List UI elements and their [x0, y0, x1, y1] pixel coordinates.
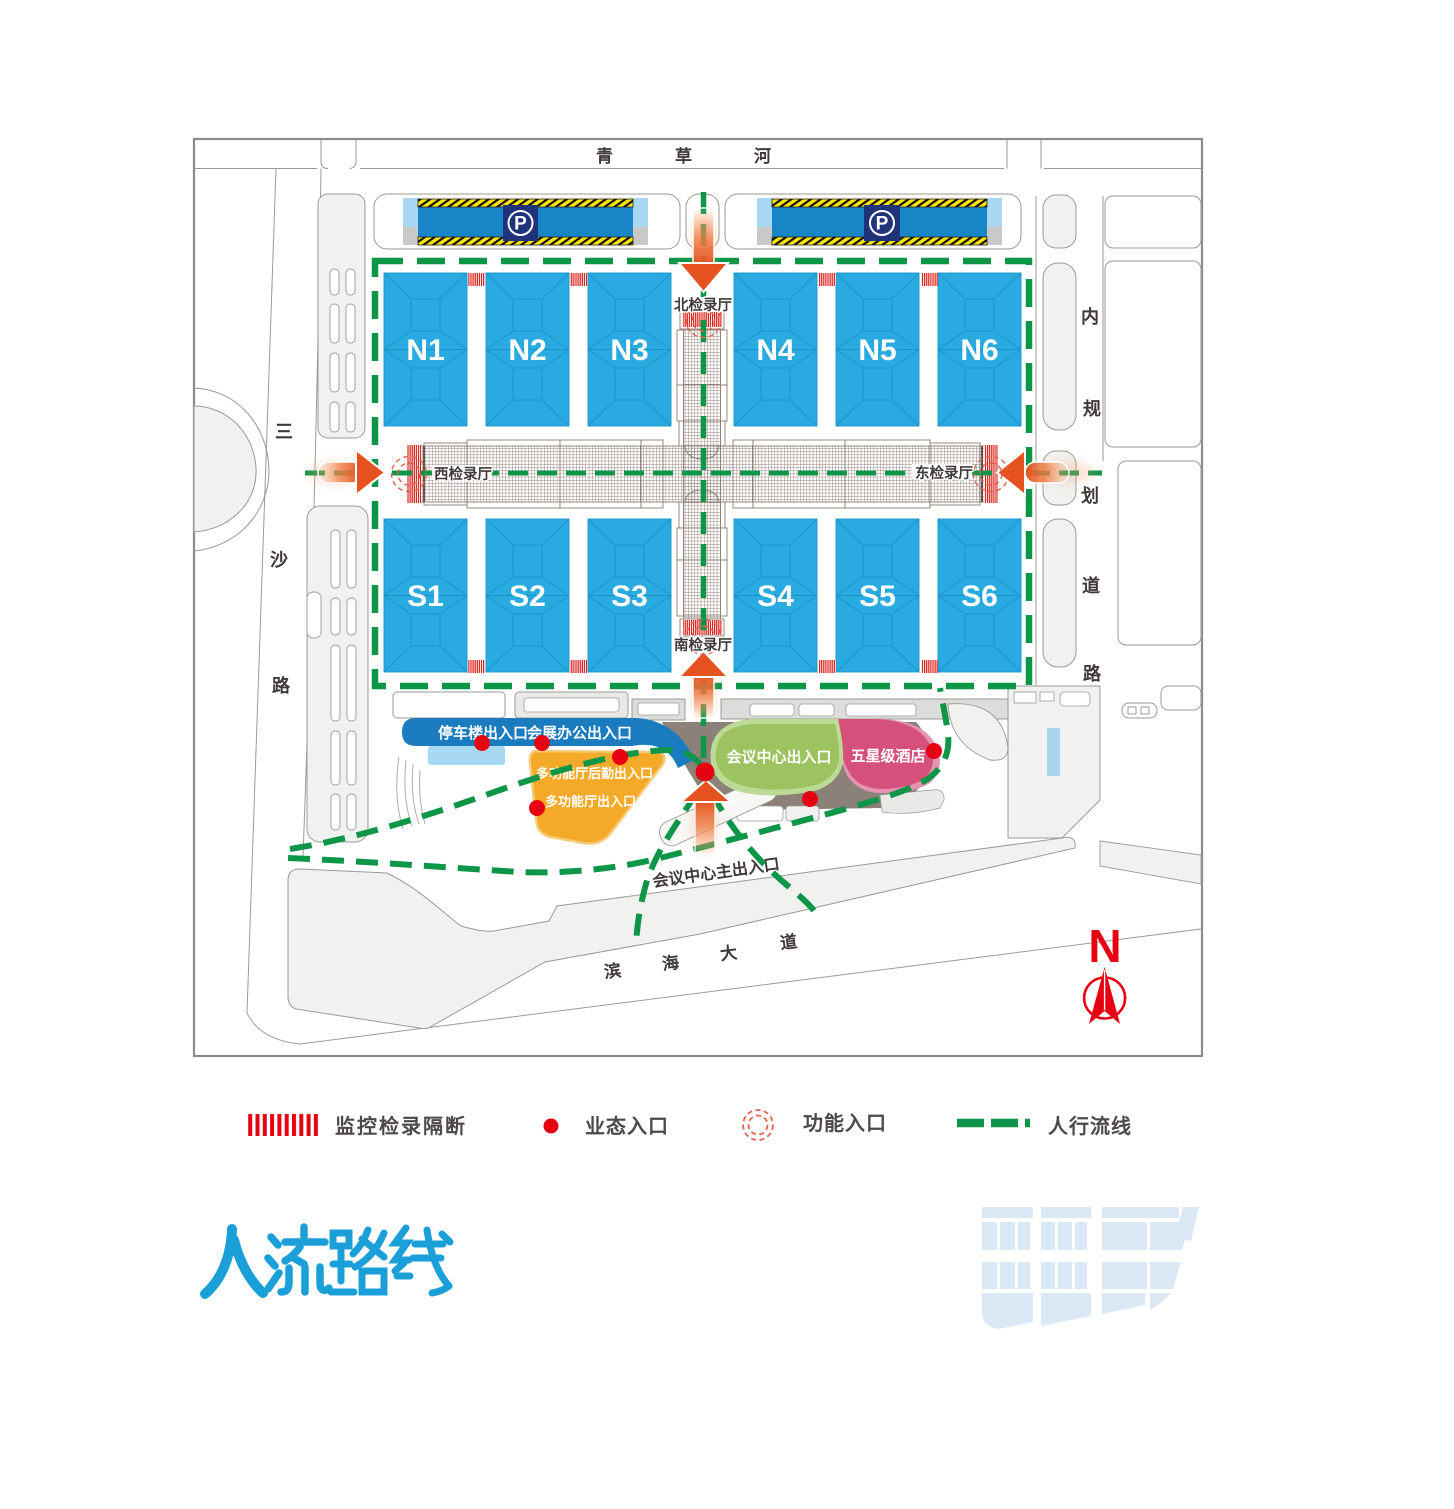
svg-text:N2: N2	[508, 334, 546, 367]
svg-text:道: 道	[779, 931, 798, 953]
svg-text:路: 路	[1083, 663, 1102, 684]
svg-text:N5: N5	[858, 334, 896, 367]
svg-text:滨: 滨	[603, 960, 622, 982]
svg-text:P: P	[514, 214, 527, 235]
svg-text:人行流线: 人行流线	[1048, 1114, 1132, 1138]
svg-text:S5: S5	[859, 580, 896, 613]
svg-text:S3: S3	[611, 580, 648, 613]
svg-text:规: 规	[1083, 399, 1101, 419]
svg-text:会议中心出入口: 会议中心出入口	[726, 748, 831, 766]
svg-text:道: 道	[1082, 575, 1100, 596]
svg-text:多功能厅出入口: 多功能厅出入口	[545, 794, 636, 809]
svg-text:东检录厅: 东检录厅	[915, 464, 973, 482]
svg-text:北检录厅: 北检录厅	[674, 296, 732, 314]
svg-text:N: N	[1088, 920, 1121, 972]
svg-text:功能入口: 功能入口	[803, 1111, 887, 1135]
svg-text:N4: N4	[756, 334, 795, 367]
svg-text:监控检录隔断: 监控检录隔断	[335, 1114, 467, 1138]
svg-text:大: 大	[719, 942, 738, 964]
svg-text:N3: N3	[610, 334, 648, 367]
svg-text:N1: N1	[406, 334, 444, 367]
svg-text:划: 划	[1081, 485, 1099, 506]
svg-text:海: 海	[661, 952, 680, 974]
svg-text:三: 三	[275, 422, 293, 442]
svg-text:S1: S1	[407, 580, 444, 613]
svg-text:内: 内	[1081, 306, 1099, 327]
svg-text:S6: S6	[961, 580, 998, 613]
svg-text:S4: S4	[757, 580, 794, 613]
svg-text:业态入口: 业态入口	[585, 1114, 669, 1138]
svg-text:青草河: 青草河	[596, 146, 833, 166]
svg-text:P: P	[876, 214, 889, 235]
svg-text:路: 路	[272, 675, 291, 696]
svg-text:N6: N6	[960, 334, 998, 367]
svg-text:西检录厅: 西检录厅	[434, 465, 492, 483]
svg-text:S2: S2	[509, 580, 546, 613]
svg-text:南检录厅: 南检录厅	[674, 636, 732, 654]
svg-text:沙: 沙	[270, 550, 288, 570]
svg-text:五星级酒店: 五星级酒店	[850, 747, 925, 765]
